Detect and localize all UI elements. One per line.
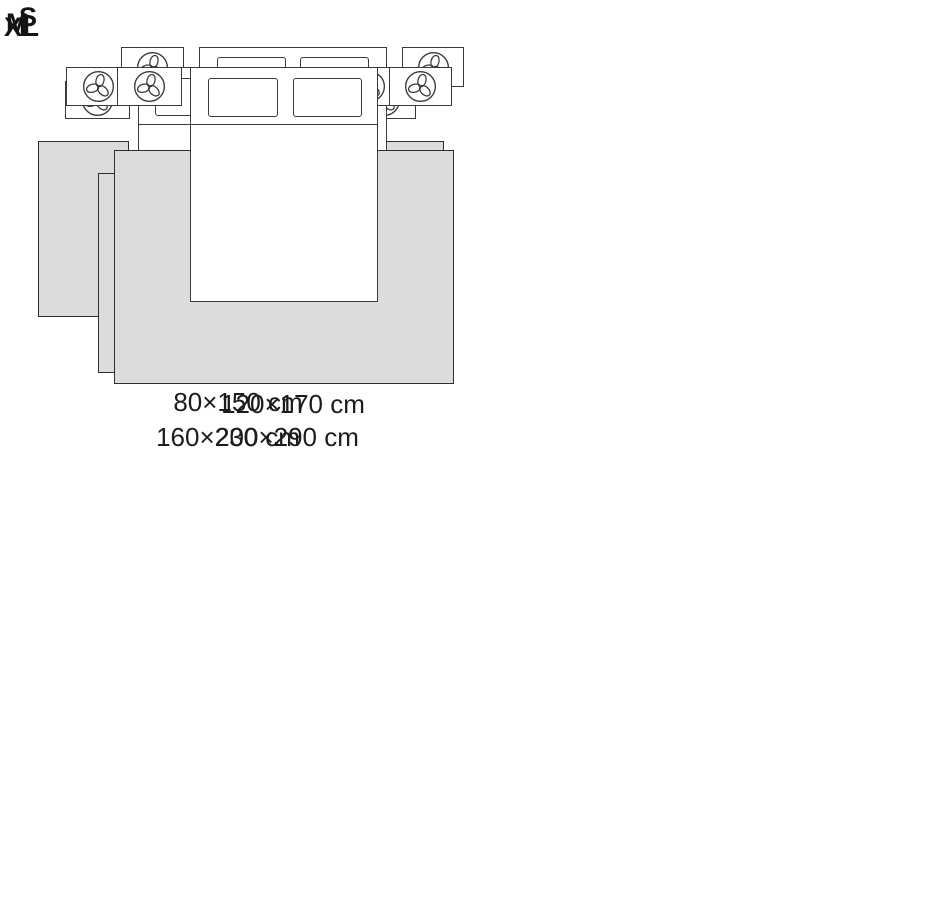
pillow-left bbox=[208, 78, 278, 117]
plant-icon bbox=[404, 70, 437, 103]
panel-label: XL bbox=[4, 14, 40, 41]
bed-top-view bbox=[190, 67, 378, 302]
pillow-right bbox=[293, 78, 362, 117]
size-panel-xl: XL bbox=[0, 0, 475, 450]
rug-size-guide-diagram: S bbox=[0, 0, 950, 900]
nightstand-left bbox=[117, 67, 182, 106]
rug-size-caption: 200×290 cm bbox=[162, 423, 412, 452]
nightstand-right bbox=[389, 67, 452, 106]
plant-icon bbox=[133, 70, 166, 103]
bed-headboard bbox=[191, 68, 377, 125]
